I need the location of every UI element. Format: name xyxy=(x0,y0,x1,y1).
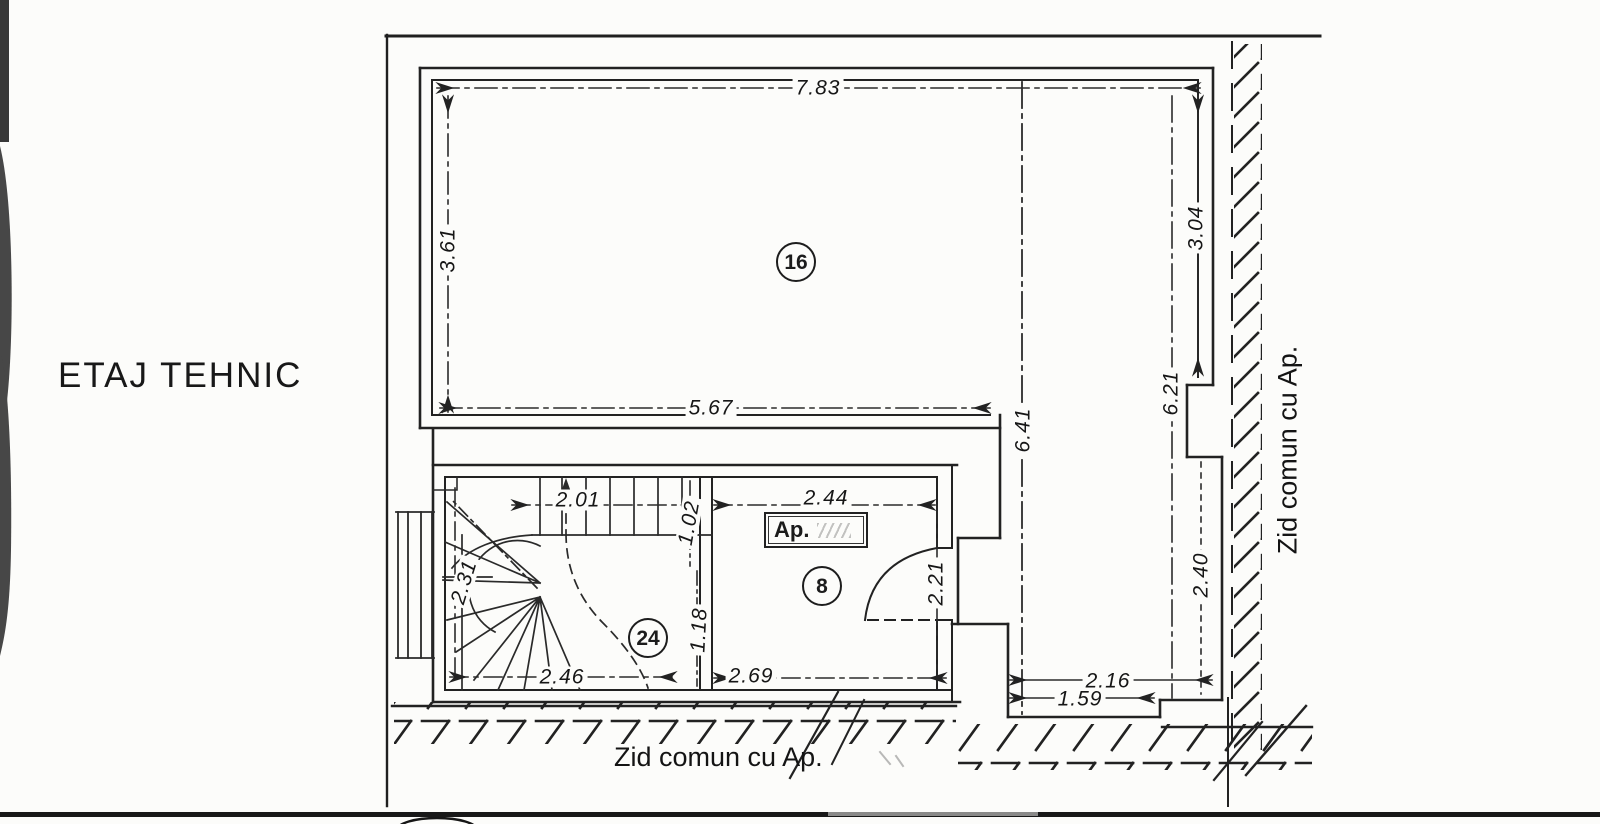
room-number-16: 16 xyxy=(784,252,807,273)
dim-right-upper-segment: 3.04 xyxy=(1186,203,1207,254)
room-circle-8: 8 xyxy=(802,566,842,606)
floor-plan-drawing xyxy=(0,0,1600,824)
room-number-8: 8 xyxy=(816,576,828,597)
dim-stair-top-width: 2.01 xyxy=(553,490,604,511)
bottom-party-wall-hatch xyxy=(392,692,1312,778)
bottom-party-wall-label: Zid comun cu Ap. xyxy=(614,742,823,773)
dimension-lines xyxy=(437,82,1212,714)
room-circle-16: 16 xyxy=(776,242,816,282)
apartment-label-box: Ap. xyxy=(764,512,868,548)
room-number-24: 24 xyxy=(636,628,659,649)
scanned-floor-plan-page: ETAJ TEHNIC 7.83 3.61 5.67 6.41 6.21 3.0… xyxy=(0,0,1600,824)
dim-room16-left-height: 3.61 xyxy=(438,225,459,276)
walls xyxy=(420,68,1222,717)
illegible-smudge xyxy=(817,523,851,538)
apartment-label: Ap. xyxy=(774,517,809,543)
scan-edge-artifacts xyxy=(0,0,1600,824)
exterior-shaft xyxy=(396,512,434,658)
dim-room8-door-side: 2.21 xyxy=(926,558,947,609)
dim-overall-top: 7.83 xyxy=(793,78,844,99)
dim-right-side-length: 6.21 xyxy=(1161,368,1182,419)
dim-room8-bottom-width: 2.69 xyxy=(726,666,777,687)
dim-room16-inner-width: 5.67 xyxy=(686,398,737,419)
dim-right-lower-segment: 2.40 xyxy=(1191,550,1212,601)
room-circle-24: 24 xyxy=(628,618,668,658)
dim-stair-bottom-width: 2.46 xyxy=(537,667,588,688)
dim-recess-lower-width: 1.59 xyxy=(1055,689,1106,710)
floor-title: ETAJ TEHNIC xyxy=(58,356,302,396)
right-party-wall-label: Zid comun cu Ap. xyxy=(1273,346,1304,555)
dim-stair-lower-flight: 1.18 xyxy=(687,604,711,656)
dim-room8-top-width: 2.44 xyxy=(801,488,852,509)
dim-leg-centerline-length: 6.41 xyxy=(1013,405,1034,456)
